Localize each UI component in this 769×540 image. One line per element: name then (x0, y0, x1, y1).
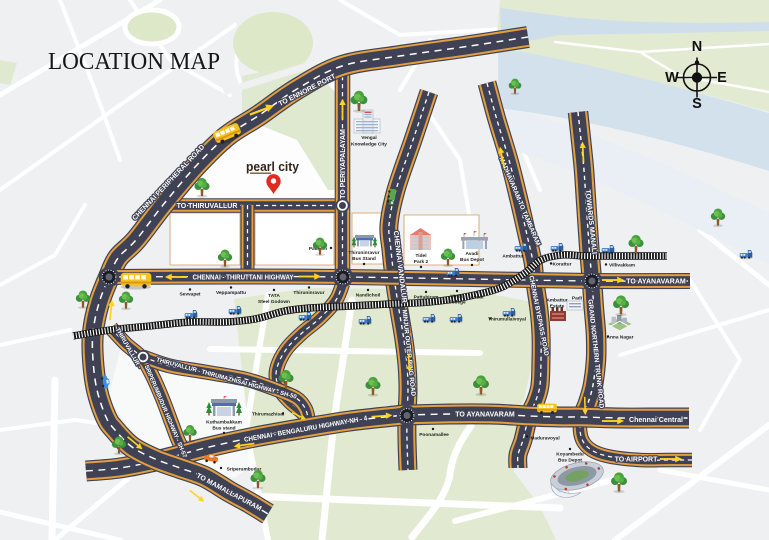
svg-text:CHENNAI - THIRUTTANI HIGHWAY: CHENNAI - THIRUTTANI HIGHWAY (193, 273, 294, 282)
svg-text:TO THIRUVALLUR: TO THIRUVALLUR (177, 203, 238, 210)
svg-text:Korattur: Korattur (553, 262, 572, 268)
svg-text:Vengal: Vengal (361, 135, 376, 141)
svg-text:Poonamallee: Poonamallee (419, 432, 449, 438)
svg-text:W: W (665, 70, 679, 86)
svg-text:N: N (692, 39, 702, 55)
svg-text:Padi: Padi (572, 296, 582, 302)
svg-text:Villivakkam: Villivakkam (609, 263, 635, 269)
svg-text:Tidel: Tidel (415, 253, 426, 259)
svg-text:Pattabiram: Pattabiram (414, 295, 439, 301)
svg-text:TO AIRPORT: TO AIRPORT (615, 457, 659, 464)
svg-text:Ambattur: Ambattur (546, 298, 567, 304)
svg-text:Chennai Central: Chennai Central (629, 417, 683, 424)
svg-text:Bus Depot: Bus Depot (460, 257, 484, 263)
svg-text:TO AYANAVARAM: TO AYANAVARAM (626, 279, 686, 286)
svg-text:Kuthambakkam: Kuthambakkam (206, 420, 242, 426)
svg-text:E: E (717, 70, 727, 86)
svg-text:Ambattur: Ambattur (502, 254, 523, 260)
svg-text:Thiruninravur: Thiruninravur (348, 250, 379, 256)
svg-text:Knowledge City: Knowledge City (351, 142, 387, 148)
svg-text:Avadi: Avadi (471, 295, 484, 301)
svg-text:Koyambedu: Koyambedu (556, 452, 584, 458)
svg-text:Thiruninravur: Thiruninravur (293, 290, 324, 296)
svg-text:TO AYANAVARAM: TO AYANAVARAM (455, 412, 515, 419)
svg-text:Steel Godown: Steel Godown (258, 299, 290, 305)
svg-text:Veppampattu: Veppampattu (216, 290, 246, 296)
svg-text:pearl city: pearl city (246, 159, 300, 174)
svg-text:College: College (448, 300, 466, 306)
svg-text:Avadi: Avadi (466, 251, 479, 257)
svg-text:Sevvapet: Sevvapet (179, 292, 200, 298)
svg-text:Bus Stand: Bus Stand (352, 256, 376, 262)
svg-text:Anna Nagar: Anna Nagar (607, 335, 634, 341)
svg-text:Hindu: Hindu (450, 294, 464, 300)
svg-text:Park 2: Park 2 (414, 259, 429, 265)
svg-text:Thirumullaivoyal: Thirumullaivoyal (488, 317, 526, 323)
svg-text:Nandichoil: Nandichoil (356, 293, 381, 299)
svg-text:TO PERIYAPALAYAM: TO PERIYAPALAYAM (340, 129, 347, 199)
svg-text:LOCATION MAP: LOCATION MAP (48, 48, 220, 75)
svg-text:TATA: TATA (268, 293, 280, 299)
svg-text:S: S (692, 96, 702, 112)
svg-text:Maduravoyal: Maduravoyal (530, 436, 559, 442)
svg-text:Thirumazhisai: Thirumazhisai (252, 412, 284, 418)
svg-text:Bus stand: Bus stand (212, 426, 235, 432)
